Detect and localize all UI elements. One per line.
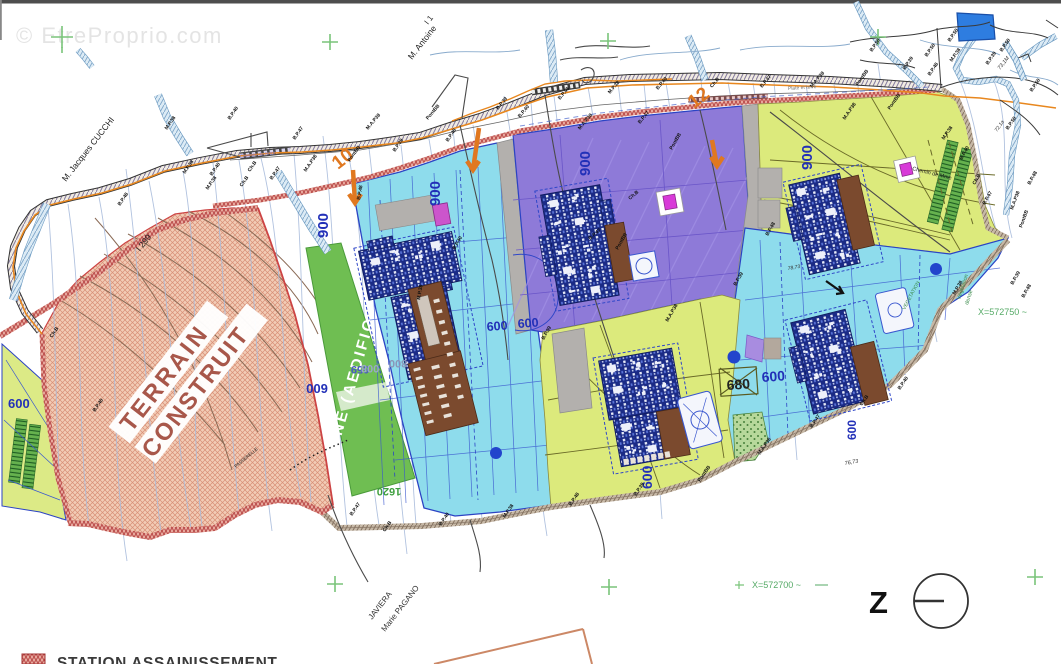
svg-text:600: 600 [845,420,859,440]
svg-text:600: 600 [761,367,786,385]
svg-text:600: 600 [8,396,30,411]
svg-text:600: 600 [517,316,539,331]
svg-text:900: 900 [315,213,332,238]
svg-text:Z: Z [869,585,888,620]
svg-text:STATION ASSAINISSEMENT: STATION ASSAINISSEMENT [57,655,277,664]
svg-text:900: 900 [427,181,444,206]
svg-text:X=572700 ~: X=572700 ~ [752,580,801,590]
svg-text:600: 600 [486,319,508,334]
svg-text:600: 600 [306,381,328,396]
svg-text:900: 900 [799,145,816,170]
svg-text:1620: 1620 [377,485,401,497]
svg-text:X=572750 ~: X=572750 ~ [978,307,1027,317]
svg-text:© EtreProprio.com: © EtreProprio.com [16,23,223,48]
svg-text:800: 800 [389,357,407,369]
svg-text:900: 900 [577,151,594,176]
svg-text:008: 008 [361,362,379,374]
svg-text:680: 680 [726,375,751,393]
